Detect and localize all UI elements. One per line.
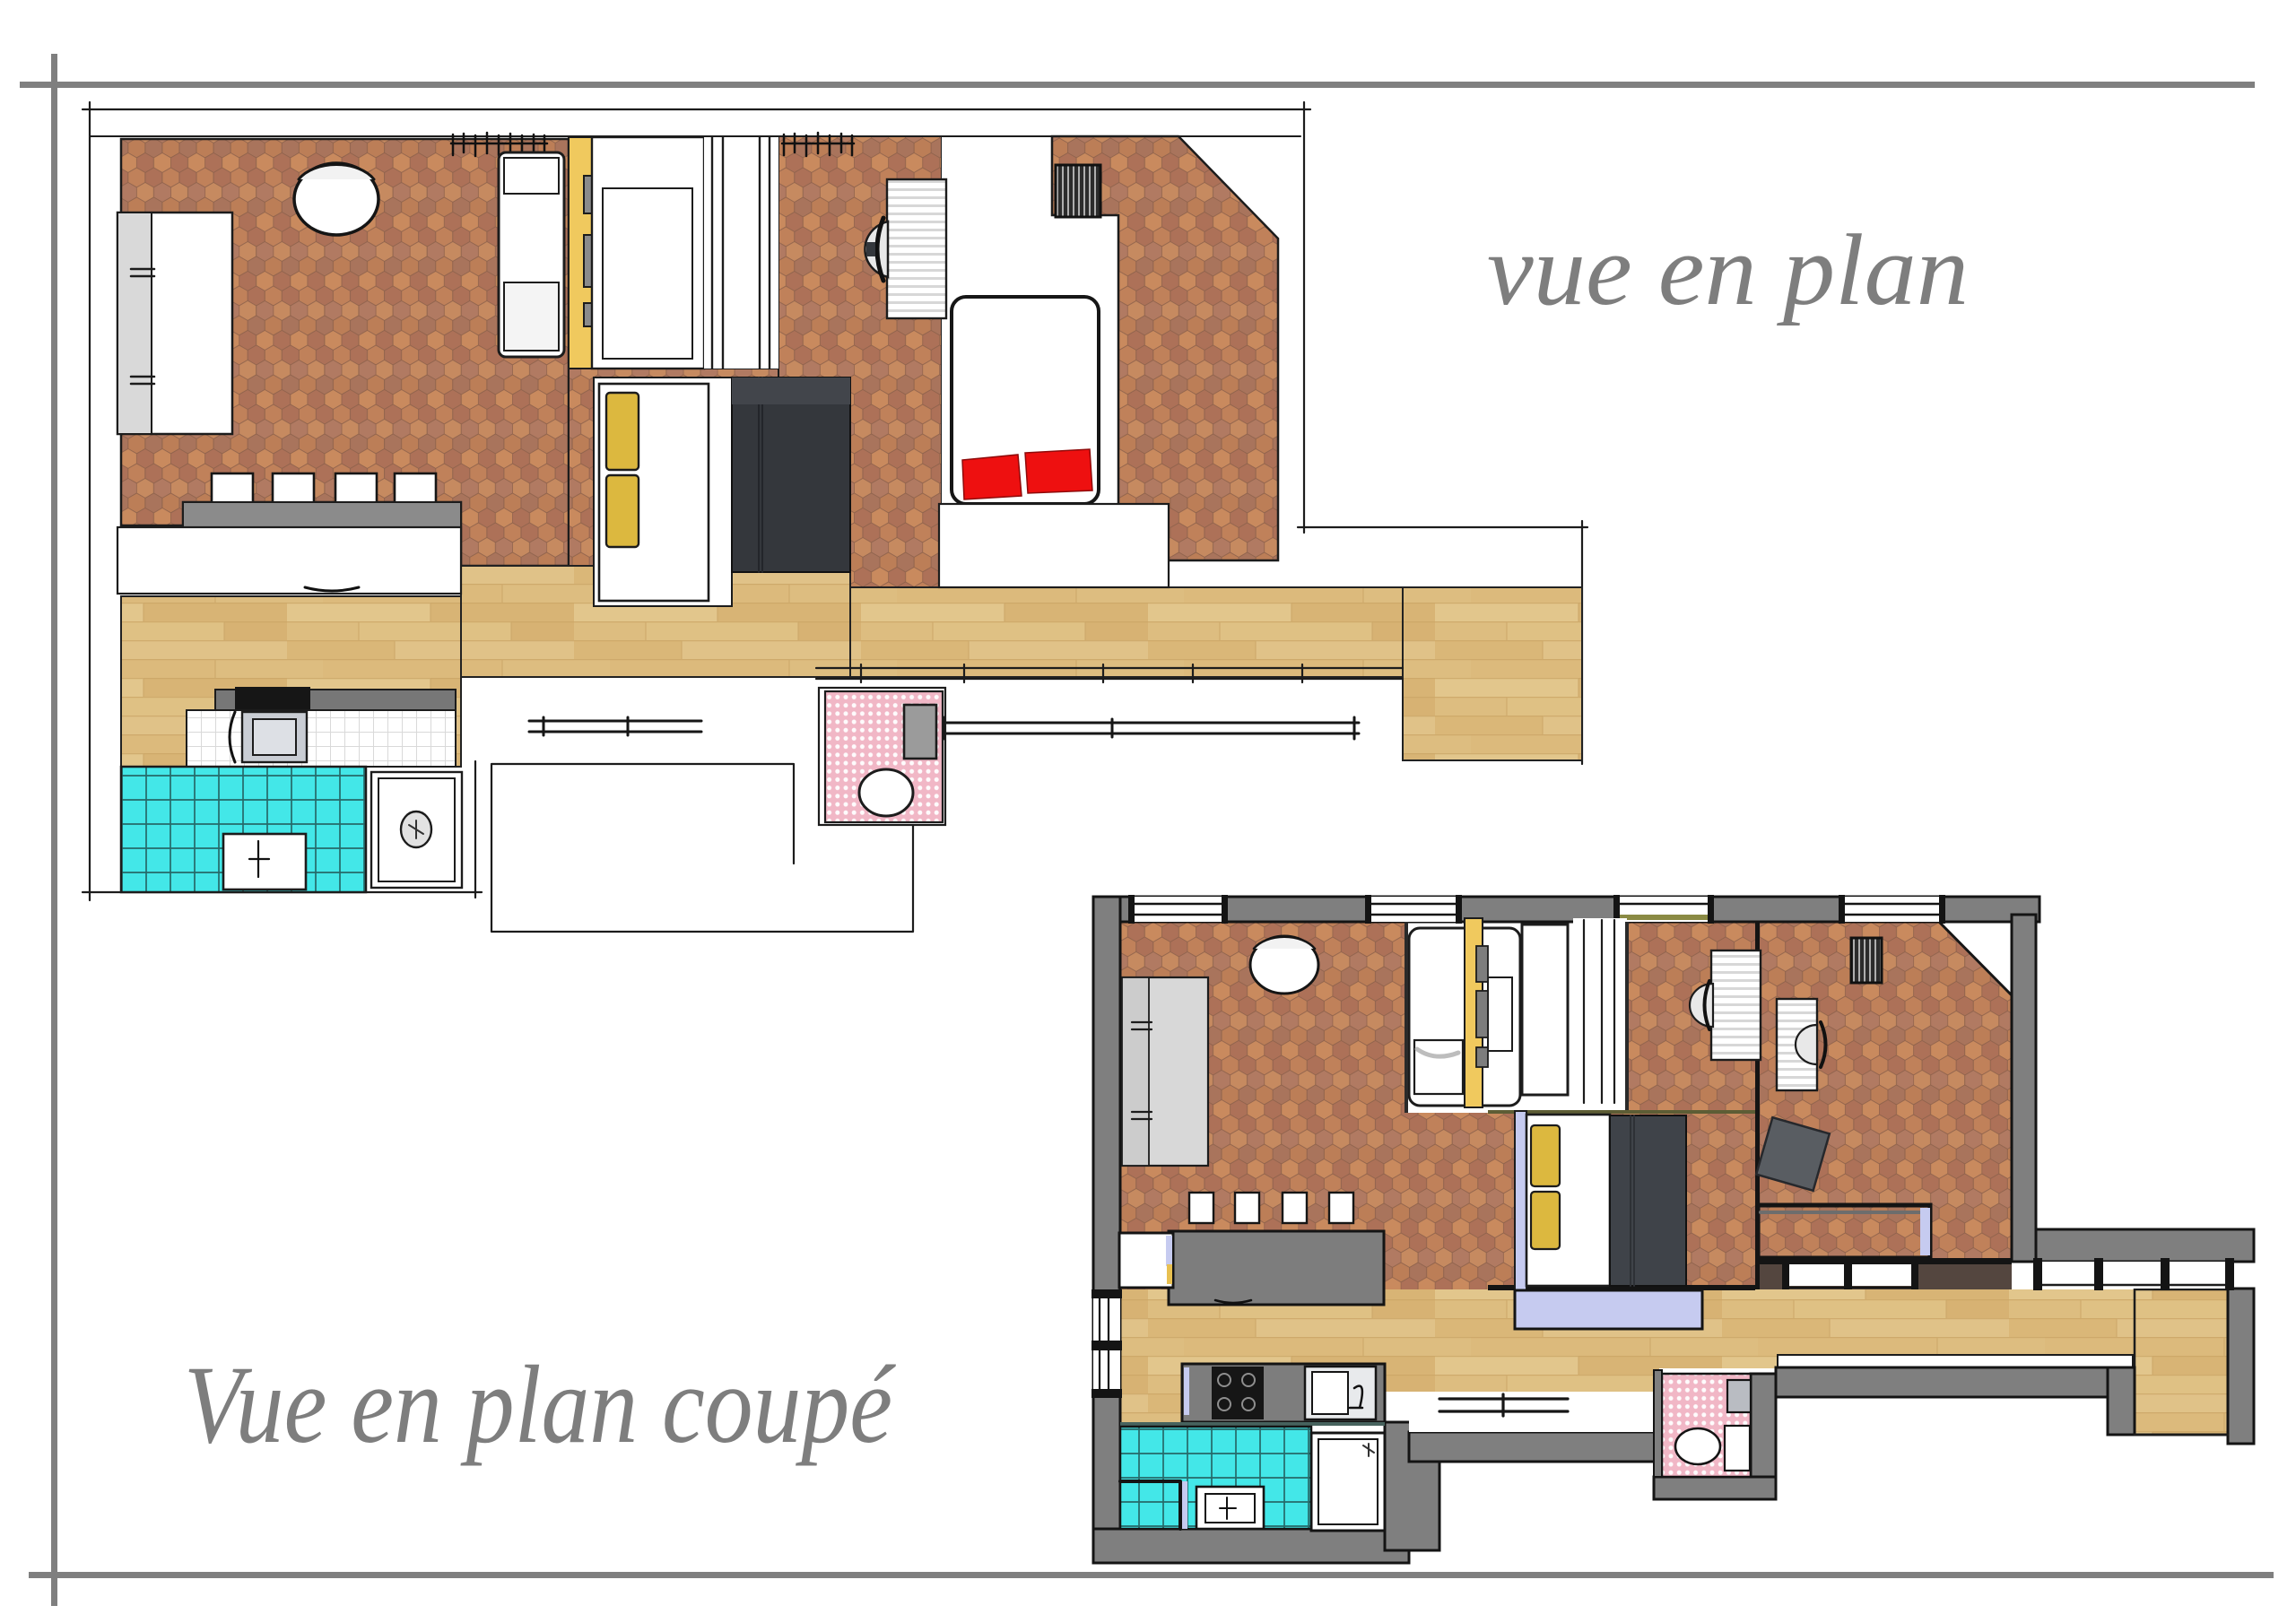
svg-text:Vue en plan coupé: Vue en plan coupé bbox=[184, 1343, 896, 1466]
svg-text:vue en plan: vue en plan bbox=[1487, 214, 1969, 326]
